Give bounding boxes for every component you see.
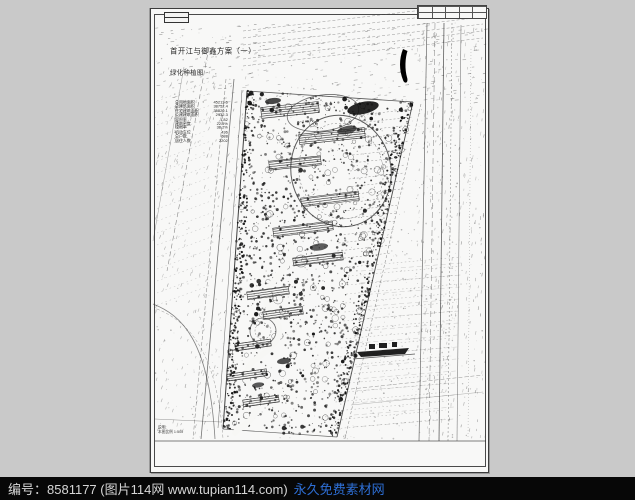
title-block-cell	[445, 12, 459, 18]
drawing-notes: 说明:本图比例 1:500	[158, 426, 183, 435]
watermark-id: 8581177	[47, 482, 97, 497]
watermark-bar: 编号：8581177 (图片114网 www.tupian114.com) 永久…	[0, 477, 635, 500]
indicator-table: 总用地面积45213.6总建筑面积38752.4住宅建筑面积35820.1公建建…	[175, 101, 228, 143]
title-block-table	[417, 5, 487, 19]
note-line: 本图比例 1:500	[158, 430, 183, 434]
page-background: 首开江与御鑫方案（一） 绿化种植图 总用地面积45213.6总建筑面积38752…	[0, 0, 635, 500]
title-block-cell	[432, 12, 446, 18]
watermark-label: 编号：	[8, 482, 47, 497]
watermark-text: 编号：8581177 (图片114网 www.tupian114.com)	[8, 479, 288, 498]
site-plan-drawing	[151, 9, 490, 474]
title-block-cell	[459, 12, 473, 18]
indicator-value: 2202	[219, 139, 228, 143]
indicator-name: 居住人数	[175, 139, 191, 143]
drawing-sheet: 首开江与御鑫方案（一） 绿化种植图 总用地面积45213.6总建筑面积38752…	[150, 8, 489, 473]
watermark-source: (图片114网 www.tupian114.com)	[100, 482, 287, 497]
watermark-site-link: 永久免费素材网	[294, 479, 385, 498]
drawing-subtitle: 绿化种植图	[170, 68, 204, 77]
drawing-title: 首开江与御鑫方案（一）	[170, 46, 256, 56]
title-block-cell	[418, 12, 432, 18]
title-block-cell	[472, 12, 486, 18]
stamp-divider	[165, 17, 188, 18]
indicator-row: 居住人数2202	[175, 139, 228, 143]
revision-stamp	[164, 12, 189, 23]
